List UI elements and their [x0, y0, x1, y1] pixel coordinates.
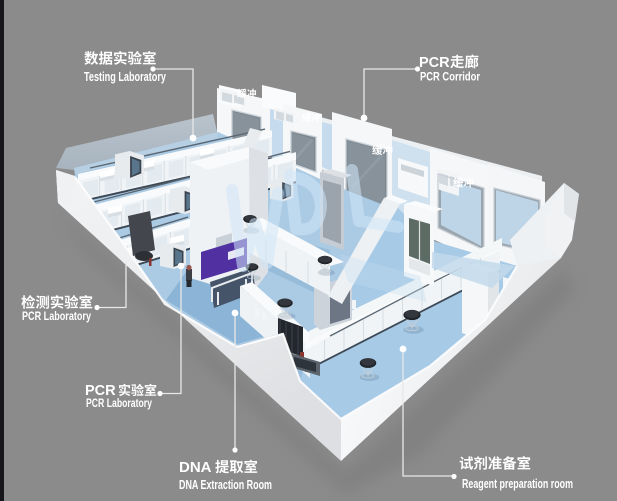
svg-text:PCR: PCR	[419, 55, 450, 71]
svg-text:PCR Laboratory: PCR Laboratory	[86, 398, 152, 410]
svg-text:Reagent preparation room: Reagent preparation room	[462, 477, 573, 491]
svg-text:DNA Extraction Room: DNA Extraction Room	[179, 478, 272, 492]
svg-text:DNA: DNA	[179, 459, 212, 476]
svg-text:PCR Laboratory: PCR Laboratory	[22, 311, 91, 323]
svg-text:Testing Laboratory: Testing Laboratory	[84, 69, 167, 84]
svg-text:PCR: PCR	[85, 383, 116, 399]
svg-text:PCR Corridor: PCR Corridor	[420, 72, 480, 84]
